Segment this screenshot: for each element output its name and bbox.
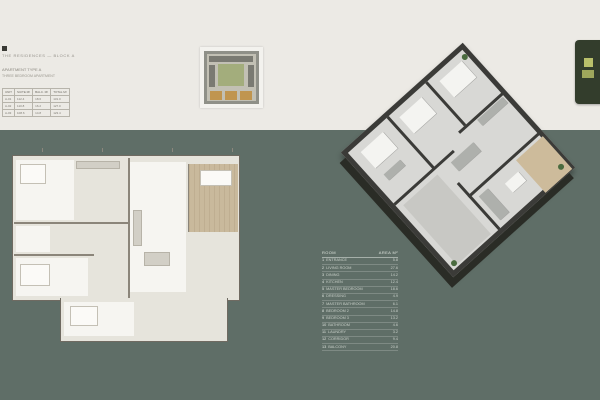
unit-info-header-cell: TOTAL M² xyxy=(51,89,70,96)
unit-info-cell: 127.0 xyxy=(51,103,70,110)
dining-table-3d xyxy=(451,142,481,171)
legend-row-number: 10 xyxy=(322,324,326,328)
legend-row-number: 11 xyxy=(322,331,326,335)
unit-info-cell: 108.6 xyxy=(15,110,33,117)
unit-info-row: A-02110.816.2127.0 xyxy=(3,103,70,110)
legend-row-name: BALCONY xyxy=(328,346,390,350)
unit-info-cell: 123.4 xyxy=(51,110,70,117)
keyplan-building-west xyxy=(209,65,215,87)
legend-row-area: 14.8 xyxy=(391,310,398,314)
unit-type-title: APARTMENT TYPE A xyxy=(2,67,92,72)
unit-info-cell: 110.8 xyxy=(15,103,33,110)
legend-row: 2LIVING ROOM27.6 xyxy=(322,265,398,272)
unit-info-header-cell: UNIT xyxy=(3,89,15,96)
legend-row-name: LAUNDRY xyxy=(328,331,393,335)
coffee-table-3d xyxy=(505,172,526,193)
unit-info-cell: 14.8 xyxy=(33,110,51,117)
dimension-tick xyxy=(102,148,103,152)
bed-furniture xyxy=(70,306,98,326)
unit-info-cell: A-02 xyxy=(3,103,15,110)
plant-3d xyxy=(461,53,469,61)
legend-row-name: LIVING ROOM xyxy=(326,267,390,271)
bed-furniture xyxy=(20,164,46,184)
legend-row-area: 13.2 xyxy=(391,317,398,321)
legend-row-number: 12 xyxy=(322,338,326,342)
keyplan-building-north xyxy=(209,56,253,62)
plan2d-wall xyxy=(14,254,94,256)
legend-row-number: 4 xyxy=(322,281,324,285)
unit-info-cell: 16.2 xyxy=(33,103,51,110)
unit-info-cell: 131.0 xyxy=(51,96,70,103)
legend-row-area: 27.6 xyxy=(391,267,398,271)
bed-3d xyxy=(439,61,476,97)
plan2d-bathroom-1 xyxy=(16,226,50,252)
unit-info-table: UNITSUITE M²BALC. M²TOTAL M² A-01112.418… xyxy=(2,88,70,117)
bed-3d xyxy=(361,132,398,168)
dining-table xyxy=(144,252,170,266)
legend-row-number: 2 xyxy=(322,267,324,271)
sofa-furniture xyxy=(133,210,142,246)
legend-row-name: BEDROOM 3 xyxy=(326,317,390,321)
legend-rows: 1ENTRANCE5.82LIVING ROOM27.63DINING14.24… xyxy=(322,258,398,351)
keyplan-siteplan xyxy=(204,51,259,104)
kitchen-counter xyxy=(76,161,120,169)
area-schedule-header: ROOM AREA M² xyxy=(322,250,398,258)
legend-row-area: 18.6 xyxy=(391,288,398,292)
keyplan-courtyard xyxy=(218,64,244,86)
legend-row: 12CORRIDOR9.4 xyxy=(322,337,398,344)
balcony-seating xyxy=(200,170,232,186)
legend-row-area: 6.1 xyxy=(393,303,398,307)
legend-row: 11LAUNDRY3.2 xyxy=(322,330,398,337)
keyplan-site-area xyxy=(207,54,256,101)
area-schedule: ROOM AREA M² 1ENTRANCE5.82LIVING ROOM27.… xyxy=(322,250,398,351)
plan2d-wall xyxy=(14,222,128,224)
legend-row-area: 5.8 xyxy=(393,259,398,263)
legend-row-area: 4.9 xyxy=(393,295,398,299)
unit-info-header-cell: SUITE M² xyxy=(15,89,33,96)
legend-row-name: MASTER BEDROOM xyxy=(326,288,390,292)
legend-row-number: 7 xyxy=(322,303,324,307)
legend-row-number: 1 xyxy=(322,259,324,263)
legend-row-name: DRESSING xyxy=(326,295,393,299)
bed-furniture xyxy=(20,264,50,286)
keyplan-card xyxy=(200,47,263,108)
brand-logo-icon xyxy=(2,46,7,51)
legend-row-number: 9 xyxy=(322,317,324,321)
legend-row-area: 9.4 xyxy=(393,338,398,342)
dimension-tick xyxy=(172,148,173,152)
plan3d-wall xyxy=(458,92,505,134)
unit-info-header-row: UNITSUITE M²BALC. M²TOTAL M² xyxy=(3,89,70,96)
unit-info-cell: A-01 xyxy=(3,96,15,103)
area-schedule-area-col: AREA M² xyxy=(379,250,398,255)
keyplan-highlight-unit-3 xyxy=(240,91,252,100)
sofa-3d xyxy=(479,188,509,220)
legend-row-name: ENTRANCE xyxy=(326,259,393,263)
legend-row-name: CORRIDOR xyxy=(328,338,392,342)
unit-info-body: A-01112.418.6131.0A-02110.816.2127.0A-03… xyxy=(3,96,70,117)
keyplan-building-east xyxy=(248,65,254,87)
floorplan-2d xyxy=(12,152,244,344)
unit-info-row: A-01112.418.6131.0 xyxy=(3,96,70,103)
legend-row: 10BATHROOM4.6 xyxy=(322,323,398,330)
legend-row-name: BEDROOM 2 xyxy=(326,310,390,314)
unit-info-row: A-03108.614.8123.4 xyxy=(3,110,70,117)
brand-block: THE RESIDENCES — BLOCK A APARTMENT TYPE … xyxy=(2,46,92,117)
legend-row-area: 12.4 xyxy=(391,281,398,285)
unit-info-cell: 112.4 xyxy=(15,96,33,103)
legend-row-name: MASTER BATHROOM xyxy=(326,303,393,307)
legend-row: 4KITCHEN12.4 xyxy=(322,280,398,287)
legend-row: 3DINING14.2 xyxy=(322,272,398,279)
legend-row-number: 6 xyxy=(322,295,324,299)
legend-row-number: 5 xyxy=(322,288,324,292)
keyplan-highlight-unit-2 xyxy=(225,91,237,100)
legend-row-number: 3 xyxy=(322,274,324,278)
legend-row: 8BEDROOM 214.8 xyxy=(322,308,398,315)
legend-row: 5MASTER BEDROOM18.6 xyxy=(322,287,398,294)
plan3d-footprint xyxy=(341,43,575,278)
keyplan-highlight-unit-1 xyxy=(210,91,222,100)
dimension-tick xyxy=(232,148,233,152)
legend-row: 9BEDROOM 313.2 xyxy=(322,316,398,323)
legend-row: 1ENTRANCE5.8 xyxy=(322,258,398,265)
unit-type-subtitle: THREE BEDROOM APARTMENT xyxy=(2,74,92,78)
legend-row-area: 20.8 xyxy=(391,346,398,350)
unit-info-cell: A-03 xyxy=(3,110,15,117)
unit-info-header-cell: BALC. M² xyxy=(33,89,51,96)
unit-info-cell: 18.6 xyxy=(33,96,51,103)
legend-row-area: 4.6 xyxy=(393,324,398,328)
bed-3d xyxy=(399,97,436,133)
brochure-page: THE RESIDENCES — BLOCK A APARTMENT TYPE … xyxy=(0,0,600,400)
legend-row-name: KITCHEN xyxy=(326,281,390,285)
legend-row-area: 3.2 xyxy=(393,331,398,335)
plan2d-wall xyxy=(128,158,130,298)
legend-row-number: 13 xyxy=(322,346,326,350)
legend-row-area: 14.2 xyxy=(391,274,398,278)
legend-row: 13BALCONY20.8 xyxy=(322,344,398,351)
project-name: THE RESIDENCES — BLOCK A xyxy=(2,53,92,58)
legend-row-number: 8 xyxy=(322,310,324,314)
legend-row: 7MASTER BATHROOM6.1 xyxy=(322,301,398,308)
legend-row-name: DINING xyxy=(326,274,390,278)
dresser-3d xyxy=(384,160,406,181)
area-schedule-name-col: ROOM xyxy=(322,250,336,255)
legend-row-name: BATHROOM xyxy=(328,324,392,328)
legend-row: 6DRESSING4.9 xyxy=(322,294,398,301)
developer-logo-icon xyxy=(582,58,596,80)
dimension-tick xyxy=(42,148,43,152)
